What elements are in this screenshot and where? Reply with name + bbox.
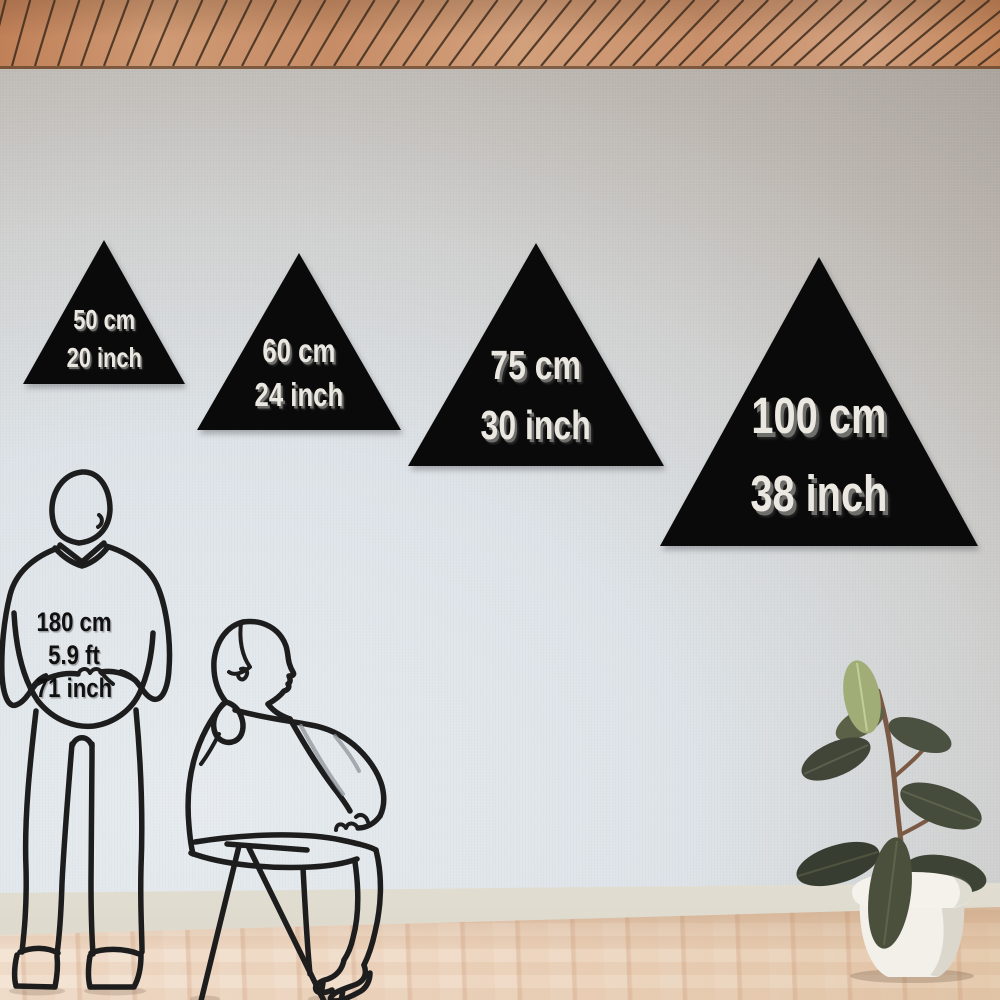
height-ft: 5.9 ft bbox=[20, 639, 128, 672]
size-inch-label: 24 inch bbox=[255, 373, 344, 417]
height-inch: 71 inch bbox=[20, 672, 128, 705]
room-scene: 50 cm 20 inch 60 cm 24 inch 75 cm 30 inc… bbox=[0, 0, 1000, 1000]
sitting-woman-line-art bbox=[183, 616, 423, 1000]
person-height-label: 180 cm 5.9 ft 71 inch bbox=[20, 606, 128, 705]
height-cm: 180 cm bbox=[20, 606, 128, 639]
size-label: 60 cm 24 inch bbox=[255, 329, 344, 430]
man-outline bbox=[2, 472, 170, 987]
standing-man-line-art bbox=[0, 463, 180, 998]
size-inch-label: 20 inch bbox=[66, 339, 141, 377]
size-cm-label: 60 cm bbox=[255, 329, 344, 373]
size-label: 75 cm 30 inch bbox=[481, 335, 591, 466]
size-triangle-75cm: 75 cm 30 inch bbox=[408, 243, 664, 466]
size-triangle-60cm: 60 cm 24 inch bbox=[197, 253, 401, 430]
plant-pot bbox=[850, 872, 974, 983]
ceiling-slat-lines bbox=[0, 0, 1000, 66]
size-triangle-100cm: 100 cm 38 inch bbox=[660, 257, 978, 546]
wood-slat-ceiling bbox=[0, 0, 1000, 69]
size-cm-label: 75 cm bbox=[481, 335, 591, 395]
triangle-panel: 75 cm 30 inch bbox=[408, 243, 664, 466]
size-inch-label: 38 inch bbox=[750, 455, 887, 533]
triangle-panel: 50 cm 20 inch bbox=[23, 240, 185, 384]
triangle-panel: 100 cm 38 inch bbox=[660, 257, 978, 546]
size-cm-label: 100 cm bbox=[750, 377, 887, 455]
size-inch-label: 30 inch bbox=[481, 395, 591, 455]
size-label: 50 cm 20 inch bbox=[66, 301, 141, 384]
size-cm-label: 50 cm bbox=[66, 301, 141, 339]
size-triangle-50cm: 50 cm 20 inch bbox=[23, 240, 185, 384]
stool-shadows bbox=[190, 996, 338, 1000]
potted-plant bbox=[790, 645, 1000, 985]
triangle-panel: 60 cm 24 inch bbox=[197, 253, 401, 430]
size-label: 100 cm 38 inch bbox=[750, 377, 887, 546]
